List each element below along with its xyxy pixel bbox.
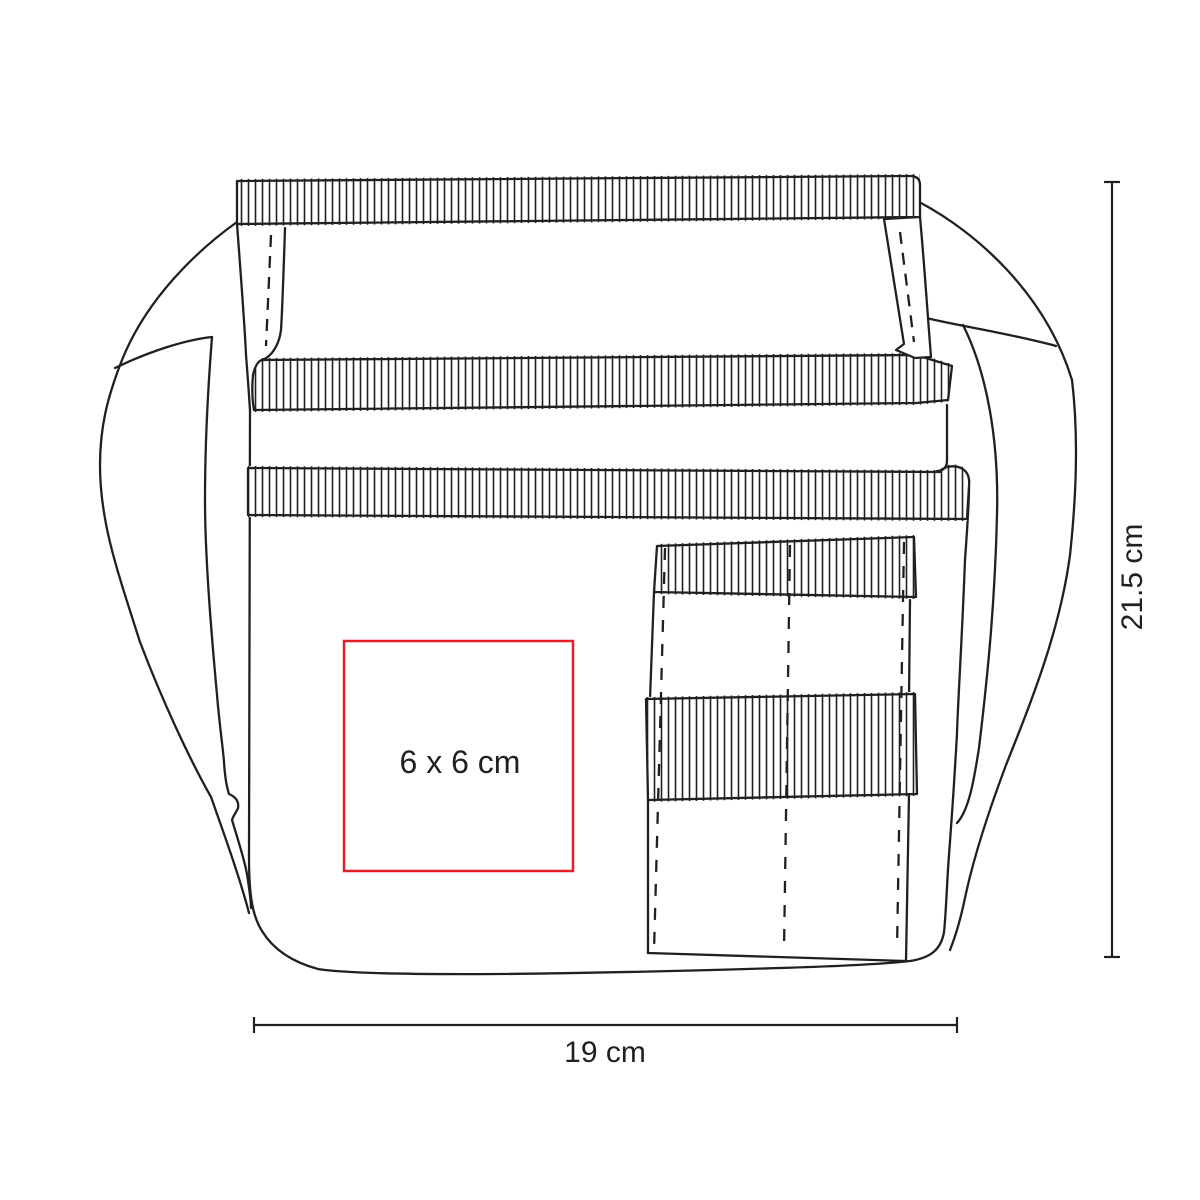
svg-text:21.5 cm: 21.5 cm xyxy=(1116,524,1149,631)
svg-text:6 x 6 cm: 6 x 6 cm xyxy=(400,744,521,780)
svg-text:19 cm: 19 cm xyxy=(564,1036,646,1069)
